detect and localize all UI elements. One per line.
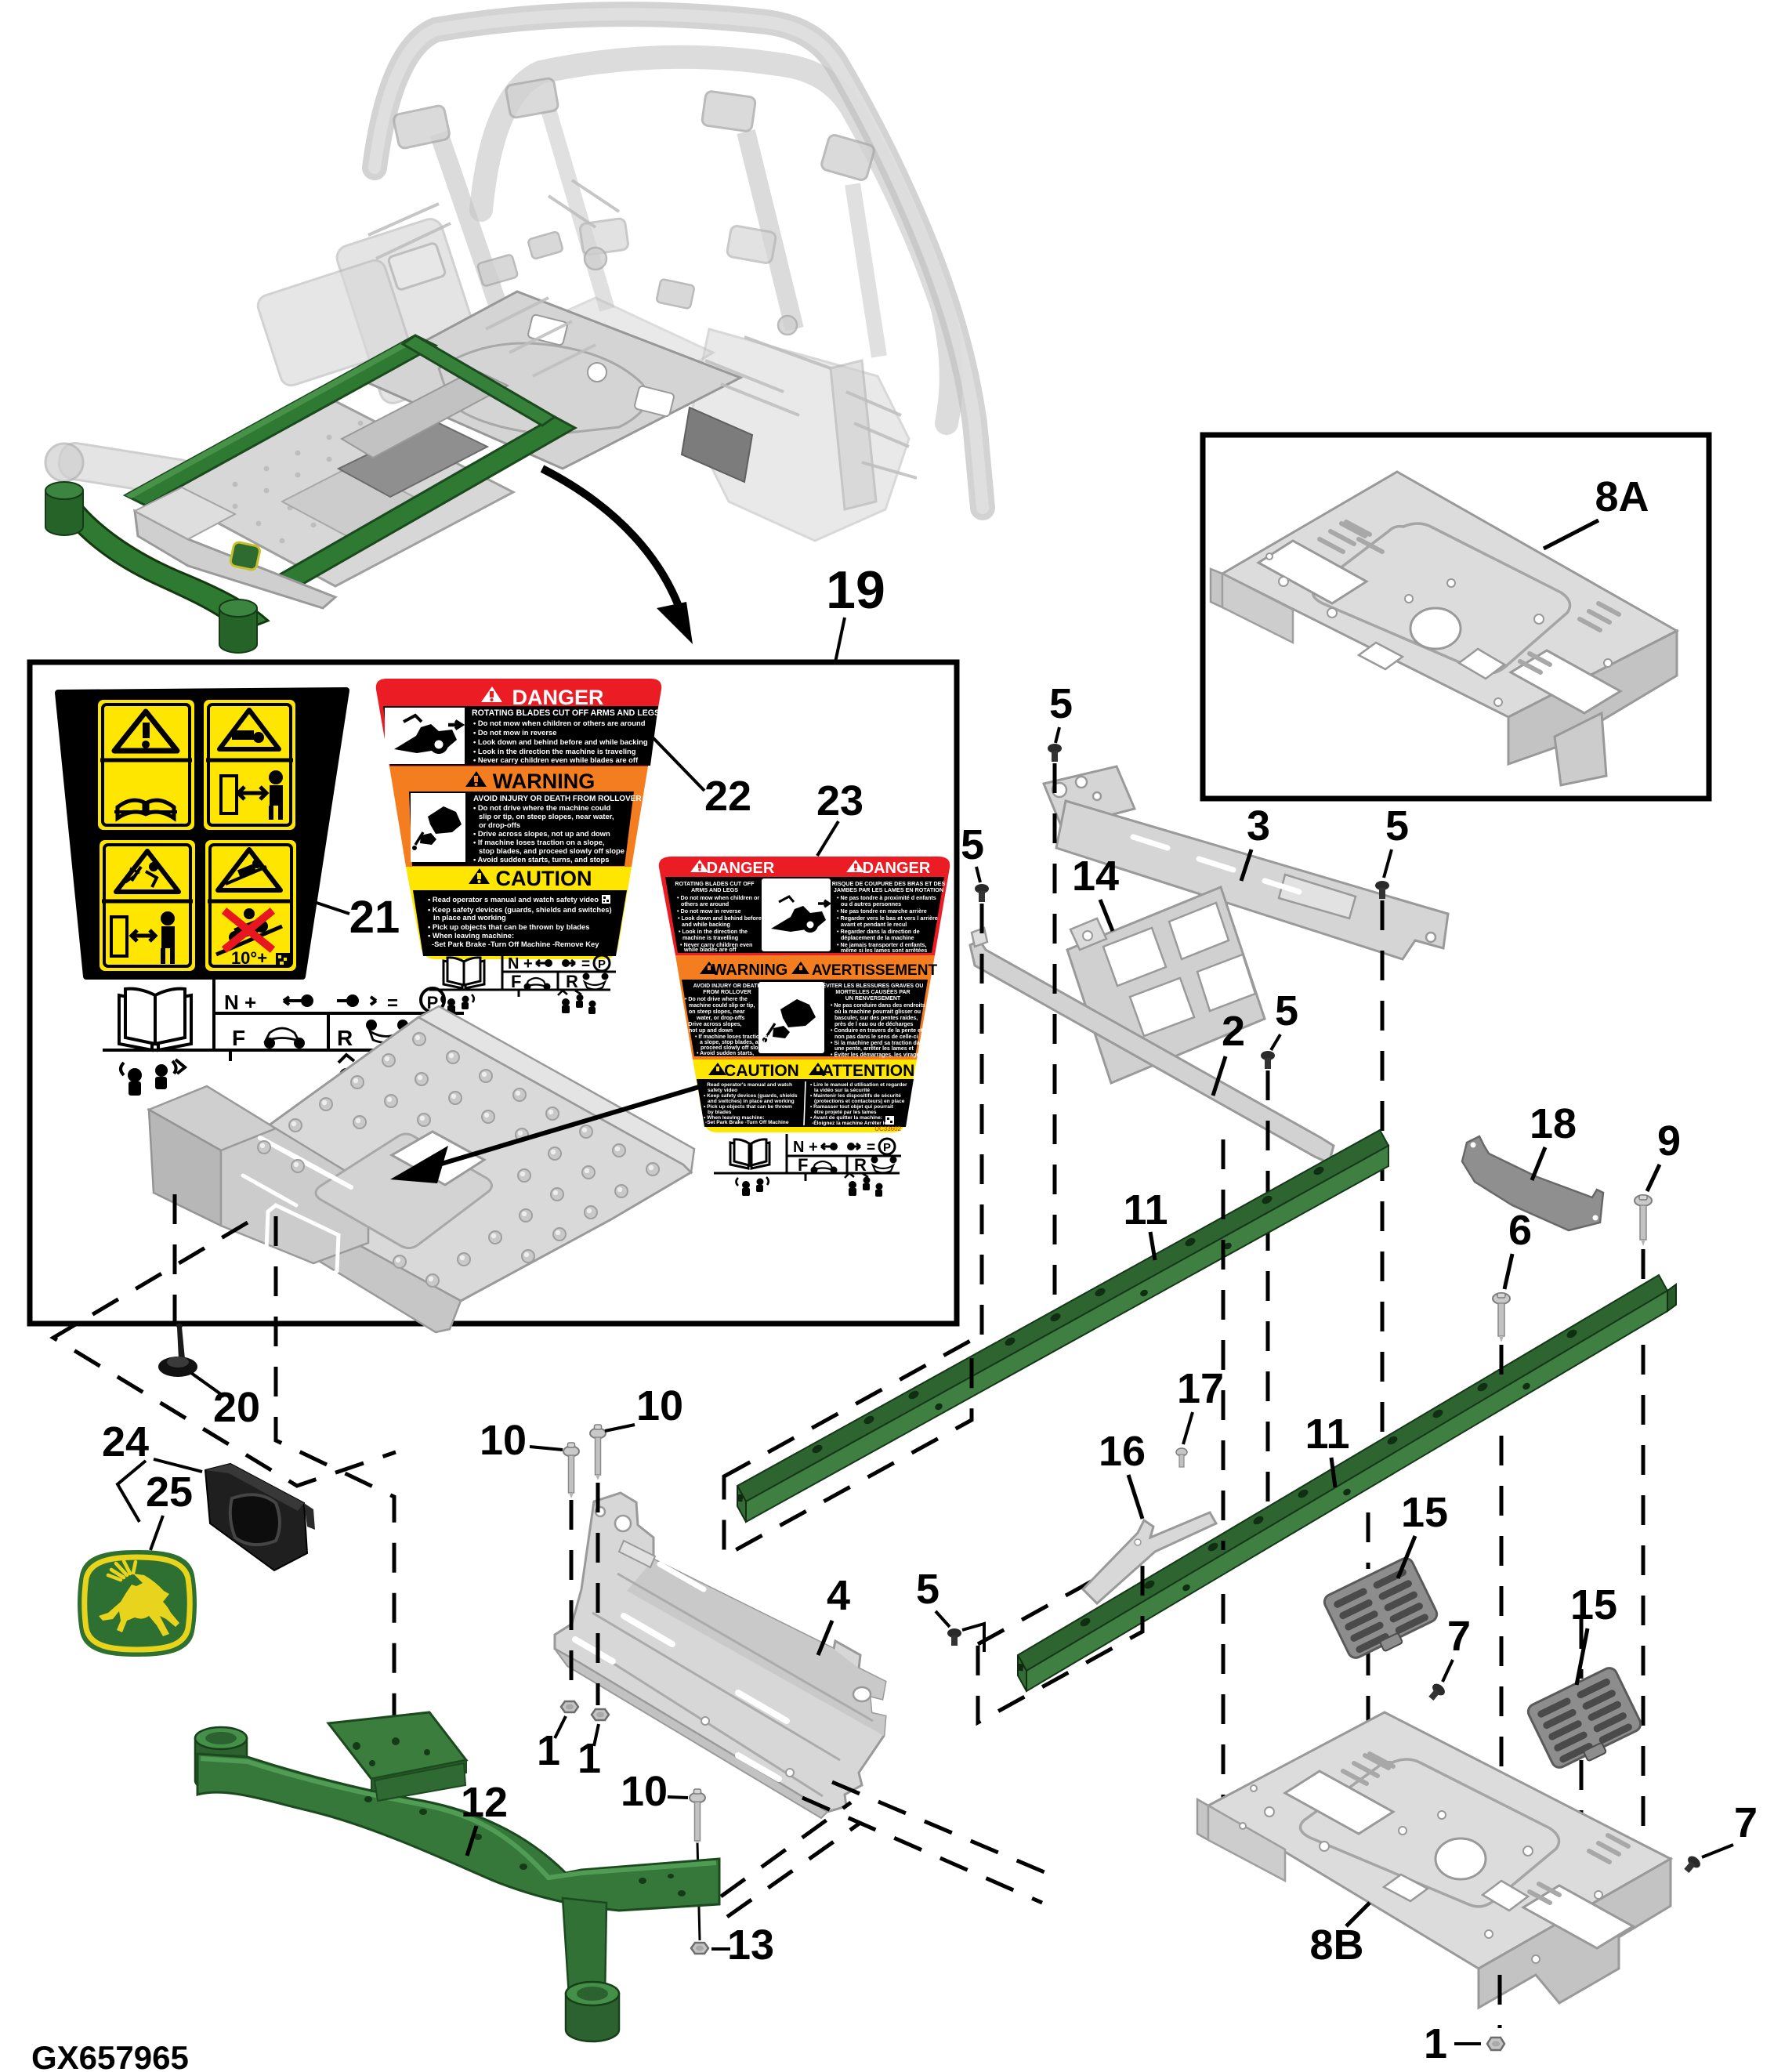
svg-text:non pas dans le sens de celle-: non pas dans le sens de celle-ci — [835, 1034, 918, 1040]
svg-text:by blades: by blades — [708, 1110, 732, 1115]
svg-text:in place and working: in place and working — [433, 913, 506, 922]
svg-text:11: 11 — [1305, 1411, 1349, 1458]
svg-text:5: 5 — [961, 821, 984, 868]
svg-text:• Drive across slopes, not up: • Drive across slopes, not up and down — [473, 829, 610, 838]
svg-text:14: 14 — [1072, 853, 1119, 900]
svg-text:• Look down and behind before: • Look down and behind before and while … — [473, 737, 648, 746]
svg-text:and while backing: and while backing — [682, 921, 730, 928]
svg-text:others are around: others are around — [681, 900, 729, 907]
svg-text:MORTELLES CAUSÉES PAR: MORTELLES CAUSÉES PAR — [835, 988, 910, 995]
svg-text:• Pick up objects that can be: • Pick up objects that can be thrown — [704, 1104, 792, 1110]
svg-text:• Éviter les démarrages, les v: • Éviter les démarrages, les virages — [831, 1051, 922, 1058]
svg-text:N +: N + — [508, 955, 533, 973]
svg-text:UC33602: UC33602 — [874, 1125, 901, 1132]
svg-text:• Do not mow when children or: • Do not mow when children or others are… — [473, 719, 646, 727]
svg-text:DANGER: DANGER — [863, 860, 931, 877]
svg-text:• Drive across slopes,: • Drive across slopes, — [685, 1022, 742, 1027]
svg-text:F: F — [232, 1026, 245, 1050]
svg-text:• If machine loses traction on: • If machine loses traction on a slope, — [473, 838, 604, 846]
svg-text:1: 1 — [577, 1735, 601, 1782]
svg-text:6: 6 — [1508, 1207, 1532, 1254]
svg-text:• Ne pas tondre en marche arri: • Ne pas tondre en marche arrière — [837, 907, 927, 915]
svg-text:ROTATING BLADES CUT OFF ARMS A: ROTATING BLADES CUT OFF ARMS AND LEGS — [472, 708, 660, 718]
svg-text:=: = — [867, 1139, 875, 1156]
svg-text:basculer, sur des pentes raide: basculer, sur des pentes raides, — [835, 1016, 918, 1021]
svg-text:15: 15 — [1570, 1581, 1617, 1628]
svg-text:GX657965: GX657965 — [31, 2039, 189, 2072]
svg-text:avant et pendant le recul: avant et pendant le recul — [841, 921, 907, 928]
svg-text:une pente, arrêter les lames e: une pente, arrêter les lames et — [835, 1046, 914, 1052]
svg-text:slip or tip, on steep slopes,: slip or tip, on steep slopes, near water… — [479, 812, 614, 820]
svg-text:• Read operator's manual and w: • Read operator's manual and watch — [704, 1082, 792, 1088]
svg-text:• Do not mow in reverse: • Do not mow in reverse — [677, 907, 741, 915]
svg-text:7: 7 — [1734, 1799, 1758, 1846]
svg-text:machine is travelling: machine is travelling — [682, 934, 738, 941]
svg-text:CAUTION: CAUTION — [724, 1062, 799, 1080]
svg-text:la vidéo sur la sécurité: la vidéo sur la sécurité — [814, 1088, 870, 1093]
svg-text:• Avoid sudden starts, turns,: • Avoid sudden starts, turns, and stops — [473, 855, 609, 864]
svg-text:AVERTISSEMENT: AVERTISSEMENT — [812, 962, 938, 979]
svg-text:8B: 8B — [1309, 1922, 1363, 1969]
svg-text:CAUTION: CAUTION — [496, 867, 592, 890]
svg-text:• When leaving machine:: • When leaving machine: — [428, 931, 514, 940]
svg-text:être projeté par les lames: être projeté par les lames — [814, 1110, 877, 1115]
svg-text:5: 5 — [1385, 802, 1409, 849]
svg-text:2: 2 — [1222, 1008, 1245, 1055]
svg-text:on steep slopes, near: on steep slopes, near — [689, 1009, 745, 1015]
svg-text:près de l eau ou de décharges: près de l eau ou de décharges — [835, 1022, 913, 1027]
svg-text:24: 24 — [102, 1418, 149, 1465]
svg-text:10: 10 — [621, 1768, 668, 1815]
svg-text:4: 4 — [827, 1572, 850, 1619]
svg-text:1: 1 — [1424, 2020, 1447, 2067]
svg-text:=: = — [581, 956, 590, 973]
svg-text:-Set Park Brake -Turn Off Mac: -Set Park Brake -Turn Off Machine -Remov… — [432, 940, 599, 948]
svg-text:• Ne pas conduire dans des end: • Ne pas conduire dans des endroits — [831, 1003, 925, 1009]
svg-text:DANGER: DANGER — [707, 860, 775, 877]
svg-text:• Avoid sudden starts,: • Avoid sudden starts, — [697, 1051, 754, 1056]
svg-text:-Set Park Brake -Turn Off Mac: -Set Park Brake -Turn Off Machine — [705, 1120, 789, 1125]
svg-text:P: P — [883, 1141, 891, 1154]
svg-text:5: 5 — [1275, 987, 1298, 1034]
svg-text:• If machine loses traction on: • If machine loses traction on — [695, 1034, 771, 1040]
svg-text:or drop-offs: or drop-offs — [479, 820, 520, 829]
svg-text:machine could slip or tip,: machine could slip or tip, — [689, 1003, 755, 1009]
svg-text:safety video: safety video — [708, 1088, 737, 1093]
svg-text:(protections et contacteurs) e: (protections et contacteurs) en place — [814, 1099, 905, 1104]
svg-text:12: 12 — [461, 1779, 508, 1826]
svg-text:3: 3 — [1247, 802, 1270, 849]
svg-text:19: 19 — [826, 560, 885, 620]
svg-text:5: 5 — [916, 1566, 939, 1613]
svg-text:WARNING: WARNING — [493, 770, 596, 793]
svg-text:not up and down: not up and down — [689, 1028, 733, 1034]
svg-text:11: 11 — [1123, 1186, 1168, 1233]
svg-text:R: R — [337, 1026, 353, 1050]
svg-text:déplacement de la machine: déplacement de la machine — [841, 934, 914, 941]
svg-text:stop blades, and proceed slowl: stop blades, and proceed slowly off slop… — [479, 846, 625, 855]
svg-text:• Avant de quitter la machine:: • Avant de quitter la machine: — [810, 1115, 882, 1121]
svg-text:JAMBES PAR LES LAMES EN ROTATI: JAMBES PAR LES LAMES EN ROTATION — [834, 886, 943, 893]
svg-text:a slope, stop blades, and: a slope, stop blades, and — [700, 1040, 765, 1045]
svg-text:où la machine pourrait glisser: où la machine pourrait glisser ou — [835, 1009, 921, 1015]
svg-text:• Lire le manuel d utilisation: • Lire le manuel d utilisation et regard… — [810, 1082, 907, 1088]
svg-text:ARMS AND LEGS: ARMS AND LEGS — [691, 886, 738, 893]
svg-text:10: 10 — [636, 1382, 683, 1429]
svg-text:• Maintenir les dispositifs de: • Maintenir les dispositifs de sécurité — [810, 1093, 901, 1099]
svg-text:proceed slowly off slope: proceed slowly off slope — [701, 1045, 765, 1051]
svg-text:• Keep safety devices (guards,: • Keep safety devices (guards, shields — [704, 1093, 798, 1099]
svg-text:18: 18 — [1530, 1100, 1577, 1147]
svg-text:UN RENVERSEMENT: UN RENVERSEMENT — [845, 996, 901, 1002]
svg-text:25: 25 — [146, 1469, 193, 1516]
svg-text:N +: N + — [793, 1139, 818, 1156]
svg-text:• Conduire en travers de la pe: • Conduire en travers de la pente et — [831, 1028, 923, 1034]
svg-text:WARNING: WARNING — [712, 962, 788, 979]
svg-text:• Look in the direction the ma: • Look in the direction the machine is t… — [473, 747, 636, 755]
svg-text:and switches) in place and wor: and switches) in place and working — [708, 1099, 795, 1104]
svg-text:FROM ROLLOVER: FROM ROLLOVER — [703, 990, 751, 995]
svg-text:AVOID INJURY OR DEATH FROM ROL: AVOID INJURY OR DEATH FROM ROLLOVER — [473, 795, 642, 803]
svg-text:F: F — [798, 1155, 808, 1175]
svg-text:• Pick up objects that can be: • Pick up objects that can be thrown by … — [428, 922, 589, 931]
svg-text:DANGER: DANGER — [512, 686, 603, 709]
svg-text:16: 16 — [1099, 1428, 1146, 1475]
svg-text:• Do not drive where the: • Do not drive where the — [685, 997, 748, 1002]
svg-text:23: 23 — [816, 777, 863, 824]
svg-text:ou d autres personnes: ou d autres personnes — [841, 900, 901, 907]
svg-text:ATTENTION: ATTENTION — [822, 1062, 915, 1080]
svg-text:20: 20 — [213, 1384, 260, 1431]
svg-text:P: P — [598, 958, 606, 971]
svg-text:8A: 8A — [1595, 473, 1649, 520]
svg-text:10: 10 — [480, 1417, 527, 1464]
svg-text:9: 9 — [1657, 1118, 1681, 1165]
svg-text:• Ramasser tout objet qui pour: • Ramasser tout objet qui pourrait — [810, 1104, 894, 1110]
svg-text:21: 21 — [349, 892, 400, 943]
svg-text:F: F — [511, 972, 521, 991]
svg-text:10°+: 10°+ — [231, 948, 267, 968]
svg-text:• Do not drive where the machi: • Do not drive where the machine could — [473, 803, 610, 812]
svg-text:• Never carry children even wh: • Never carry children even while blades… — [473, 755, 639, 764]
svg-text:22: 22 — [704, 773, 751, 820]
svg-text:R: R — [854, 1155, 867, 1175]
svg-text:même si les lames sont arrêtée: même si les lames sont arrêtées — [841, 947, 927, 954]
svg-text:• Do not mow in reverse: • Do not mow in reverse — [473, 728, 556, 737]
svg-text:=: = — [387, 993, 398, 1014]
svg-text:15: 15 — [1401, 1489, 1448, 1536]
svg-text:AVOID INJURY OR DEATH: AVOID INJURY OR DEATH — [693, 983, 762, 989]
svg-text:17: 17 — [1177, 1365, 1224, 1412]
svg-text:• Read operator s manual and: • Read operator s manual and watch safet… — [428, 895, 599, 904]
svg-text:• Si la machine perd sa tracti: • Si la machine perd sa traction dans — [831, 1041, 926, 1046]
svg-text:7: 7 — [1447, 1613, 1471, 1660]
svg-text:5: 5 — [1049, 680, 1073, 727]
svg-text:N +: N + — [224, 991, 256, 1014]
svg-text:13: 13 — [727, 1922, 774, 1969]
svg-text:water, or drop-offs: water, or drop-offs — [696, 1016, 745, 1021]
svg-text:R: R — [566, 972, 578, 991]
svg-text:while blades are off: while blades are off — [683, 946, 737, 953]
svg-text:ÉVITER LES BLESSURES GRAVES OU: ÉVITER LES BLESSURES GRAVES OU — [822, 982, 923, 989]
